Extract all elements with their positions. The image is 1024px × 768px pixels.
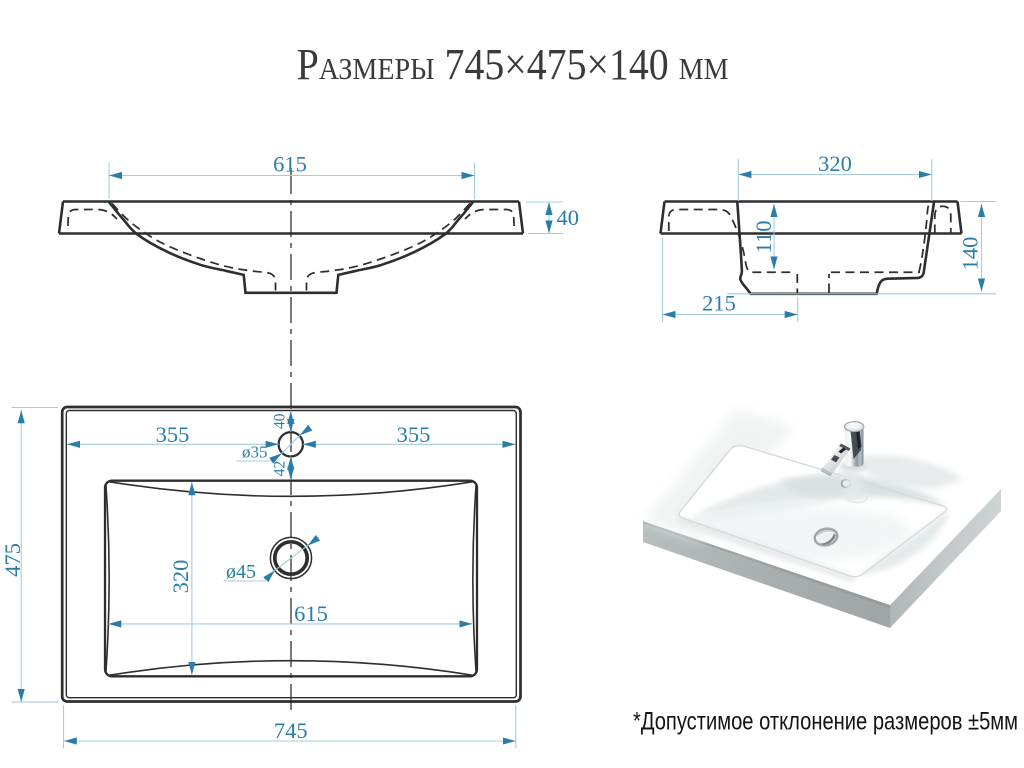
svg-text:475: 475 bbox=[0, 543, 25, 577]
svg-text:40: 40 bbox=[557, 205, 580, 230]
svg-text:615: 615 bbox=[273, 152, 307, 177]
svg-text:320: 320 bbox=[818, 151, 852, 176]
svg-text:ø45: ø45 bbox=[226, 561, 256, 583]
svg-text:355: 355 bbox=[156, 422, 190, 447]
svg-text:140: 140 bbox=[958, 237, 983, 271]
svg-text:42: 42 bbox=[272, 461, 289, 477]
svg-text:110: 110 bbox=[751, 221, 776, 254]
svg-text:745: 745 bbox=[274, 718, 308, 743]
svg-text:Размеры 745×475×140 мм: Размеры 745×475×140 мм bbox=[297, 40, 729, 89]
svg-text:ø35: ø35 bbox=[242, 443, 268, 462]
svg-text:40: 40 bbox=[272, 413, 289, 429]
svg-text:*Допустимое отклонение размеро: *Допустимое отклонение размеров ±5мм bbox=[633, 708, 1018, 736]
svg-text:615: 615 bbox=[294, 601, 328, 626]
svg-text:320: 320 bbox=[168, 560, 193, 594]
svg-text:355: 355 bbox=[397, 422, 431, 447]
